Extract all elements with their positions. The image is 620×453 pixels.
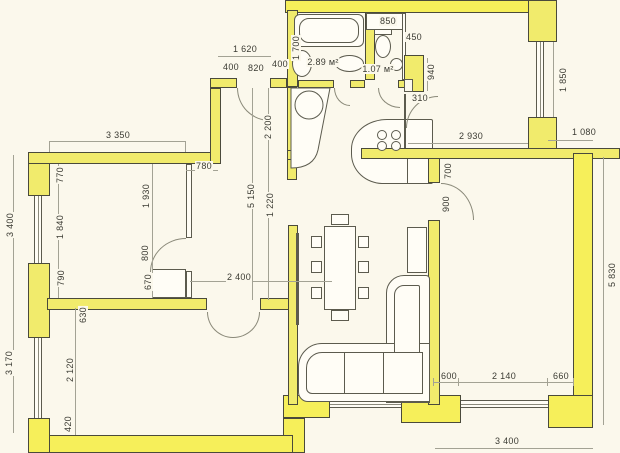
dim-label: 670 <box>143 273 153 291</box>
dim-label: 3 400 <box>5 212 15 238</box>
dim-label: 3 400 <box>494 436 520 446</box>
dim-label: 600 <box>440 371 458 381</box>
dim-label: 3 170 <box>4 350 14 376</box>
dim-label: 630 <box>78 306 88 324</box>
dim-label: 2 200 <box>263 114 273 140</box>
dim-label: 900 <box>441 195 451 213</box>
dim-label: 420 <box>63 415 73 433</box>
floor-plan: 1 6204008204001 7008504502.89 м²1.07 м²9… <box>0 0 620 453</box>
dim-label: 660 <box>552 371 570 381</box>
dim-label: 1 930 <box>141 183 151 209</box>
dim-label: 1 080 <box>571 127 597 137</box>
dim-label: 2 930 <box>458 131 484 141</box>
dim-label: 5 150 <box>246 183 256 209</box>
dim-label: 850 <box>379 16 397 26</box>
dimension-labels-layer: 1 6204008204001 7008504502.89 м²1.07 м²9… <box>0 0 620 453</box>
dim-label: 2 400 <box>226 272 252 282</box>
dim-label: 790 <box>56 269 66 287</box>
dim-label: 820 <box>247 63 265 73</box>
dim-label: 800 <box>140 244 150 262</box>
dim-label: 450 <box>405 32 423 42</box>
dim-label: 700 <box>443 162 453 180</box>
dim-label: 1 620 <box>232 44 258 54</box>
dim-label: 310 <box>411 93 429 103</box>
dim-label: 3 350 <box>105 130 131 140</box>
dim-label: 2.89 м² <box>306 57 339 67</box>
dim-label: 1 840 <box>55 214 65 240</box>
dim-label: 1 220 <box>265 192 275 218</box>
dim-label: 400 <box>222 62 240 72</box>
dim-label: 770 <box>55 166 65 184</box>
dim-label: 1 700 <box>291 35 301 61</box>
dim-label: 5 830 <box>607 262 617 288</box>
dim-label: 1 850 <box>558 67 568 93</box>
dim-label: 400 <box>271 59 289 69</box>
dim-label: 2 140 <box>491 371 517 381</box>
dim-label: 940 <box>426 63 436 81</box>
dim-label: 1.07 м² <box>361 64 394 74</box>
dim-label: 2 120 <box>65 357 75 383</box>
dim-label: 780 <box>195 161 213 171</box>
